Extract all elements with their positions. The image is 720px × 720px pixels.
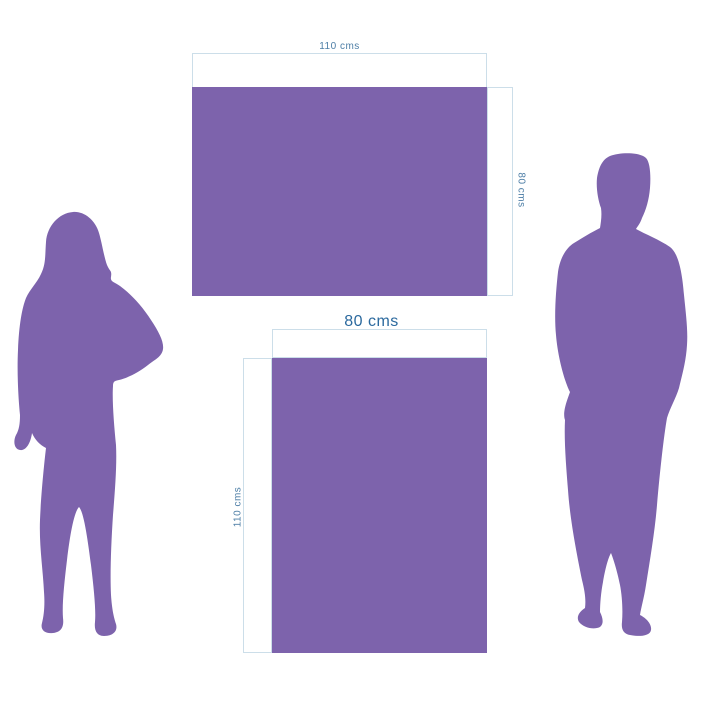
size-comparison-diagram: 110 cms 80 cms 80 cms 110 cms — [0, 0, 720, 720]
scale-figures — [0, 0, 720, 720]
man-silhouette — [555, 153, 687, 636]
woman-silhouette — [14, 212, 163, 636]
